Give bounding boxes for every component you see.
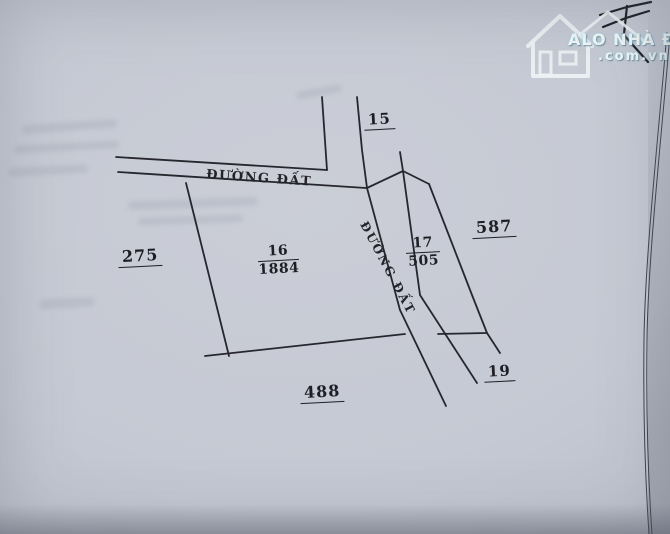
- parcel-15-label: 15: [364, 111, 396, 130]
- land-plot-photo: 15 275 16 1884 17 505 587 488 19 ĐƯỜNG Đ…: [0, 0, 670, 534]
- parcel-19-label: 19: [484, 363, 516, 382]
- parcel-16-label: 16 1884: [257, 243, 300, 279]
- parcel-15-right-tick: [400, 152, 403, 171]
- parcel-16-area: 1884: [258, 260, 300, 279]
- parcel-17-top-boundary: [403, 171, 429, 184]
- parcel-275-label: 275: [118, 247, 163, 268]
- parcel-16-left-boundary: [186, 183, 229, 356]
- parcel-16-bottom-boundary: [205, 334, 405, 356]
- boundary-top-vertical: [322, 97, 327, 170]
- parcel-587-label: 587: [472, 218, 517, 239]
- cadastral-linework: [0, 0, 670, 534]
- parcel-16-number: 16: [257, 243, 299, 263]
- watermark-domain-text: .com.vn: [598, 49, 670, 64]
- parcel-17-bottom-boundary: [438, 333, 487, 334]
- parcel-488-label: 488: [300, 383, 345, 404]
- parcel-17-label: 17 505: [405, 235, 441, 271]
- paper-edge-line: [647, 34, 670, 534]
- parcel-15-bottom-boundary: [367, 171, 403, 188]
- parcel-17-number: 17: [405, 235, 440, 254]
- watermark-brand-text: ALO NHÀ ĐẤT: [568, 30, 670, 49]
- parcel-17-area: 505: [406, 252, 441, 270]
